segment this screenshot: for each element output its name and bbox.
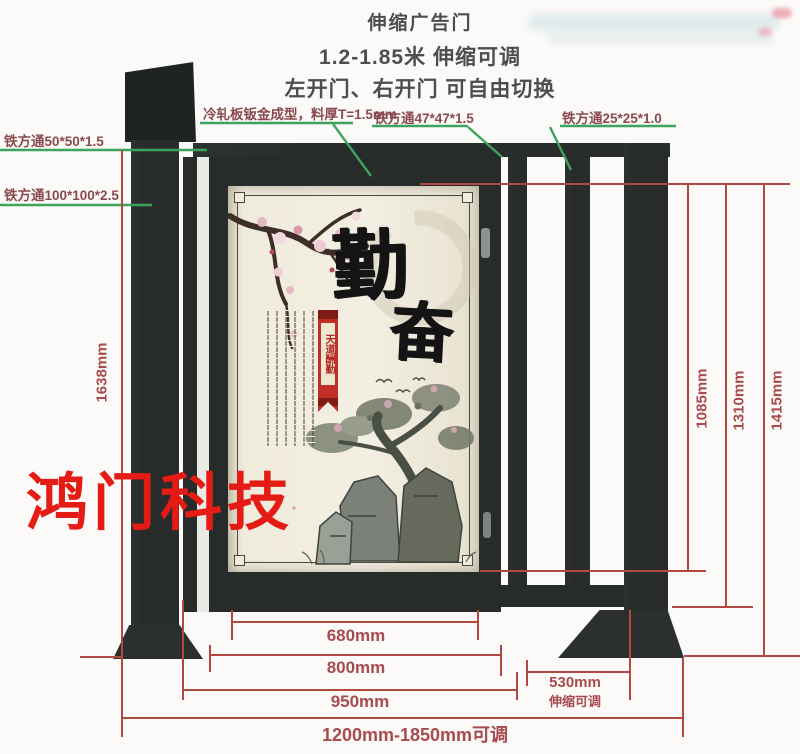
telescopic-bar-2 bbox=[565, 157, 590, 593]
right-pillar bbox=[624, 143, 668, 612]
dim-width-950: 950mm bbox=[310, 692, 410, 712]
dim-width-680: 680mm bbox=[306, 626, 406, 646]
dim-width-range: 1200mm-1850mm可调 bbox=[265, 721, 565, 747]
dim-ext-530: 530mm bbox=[535, 674, 615, 691]
dim-height-1415: 1415mm bbox=[769, 365, 786, 437]
scan-smudge bbox=[758, 28, 772, 36]
door-frame-seam bbox=[197, 157, 209, 612]
dim-ext-note: 伸缩可调 bbox=[535, 691, 615, 710]
lower-rail bbox=[460, 585, 628, 607]
dim-height-1085: 1085mm bbox=[694, 363, 711, 435]
red-ribbon-seal: 天道酬勤 bbox=[318, 310, 338, 412]
door-lock-icon bbox=[483, 512, 491, 538]
ribbon-motto: 天道酬勤 bbox=[321, 334, 335, 374]
poem-text-columns-texture bbox=[267, 310, 315, 446]
dim-height-1638: 1638mm bbox=[94, 337, 111, 409]
callout-tube-47: 铁方通47*47*1.5 bbox=[374, 107, 474, 127]
ribbon-panel: 天道酬勤 bbox=[321, 323, 335, 385]
telescopic-bar-1 bbox=[508, 157, 527, 593]
product-range-subtitle: 1.2-1.85米 伸缩可调 bbox=[170, 41, 670, 71]
door-handle-icon bbox=[481, 228, 490, 258]
right-pillar-base bbox=[558, 610, 684, 658]
ribbon-cap bbox=[318, 310, 338, 319]
product-title: 伸缩广告门 bbox=[170, 8, 670, 35]
callout-panel-material: 冷轧板钣金成型，料厚T=1.5mm bbox=[203, 103, 397, 123]
callout-tube-50: 铁方通50*50*1.5 bbox=[4, 130, 104, 150]
left-pillar-base bbox=[113, 625, 203, 659]
top-rail bbox=[193, 143, 670, 157]
product-opening-subtitle: 左开门、右开门 可自由切换 bbox=[170, 73, 670, 103]
left-pillar bbox=[131, 140, 179, 627]
callout-tube-25: 铁方通25*25*1.0 bbox=[562, 107, 662, 127]
callout-tube-100: 铁方通100*100*2.5 bbox=[4, 184, 119, 204]
dim-height-1310: 1310mm bbox=[731, 365, 748, 437]
brand-watermark: 鸿门科技 bbox=[26, 452, 294, 542]
calligraphy-char-fen: 奋 bbox=[388, 280, 457, 375]
dim-width-800: 800mm bbox=[306, 658, 406, 678]
scan-smudge bbox=[772, 8, 792, 18]
product-diagram-page: { "header": { "line1": "伸缩广告门", "line2":… bbox=[0, 0, 800, 754]
